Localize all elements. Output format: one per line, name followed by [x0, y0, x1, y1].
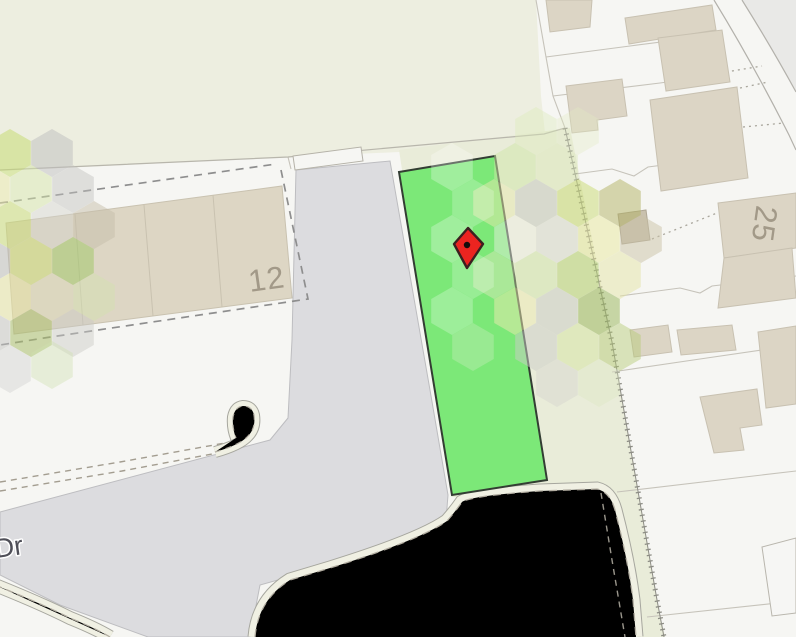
- house-number-25: 25: [745, 204, 785, 245]
- street-name-dr: Dr: [0, 530, 25, 564]
- house-number-12: 12: [246, 259, 287, 299]
- map-canvas[interactable]: 12 25 Dr: [0, 0, 796, 637]
- map-viewport[interactable]: 12 25 Dr: [0, 0, 796, 637]
- marker-center-dot: [464, 242, 470, 248]
